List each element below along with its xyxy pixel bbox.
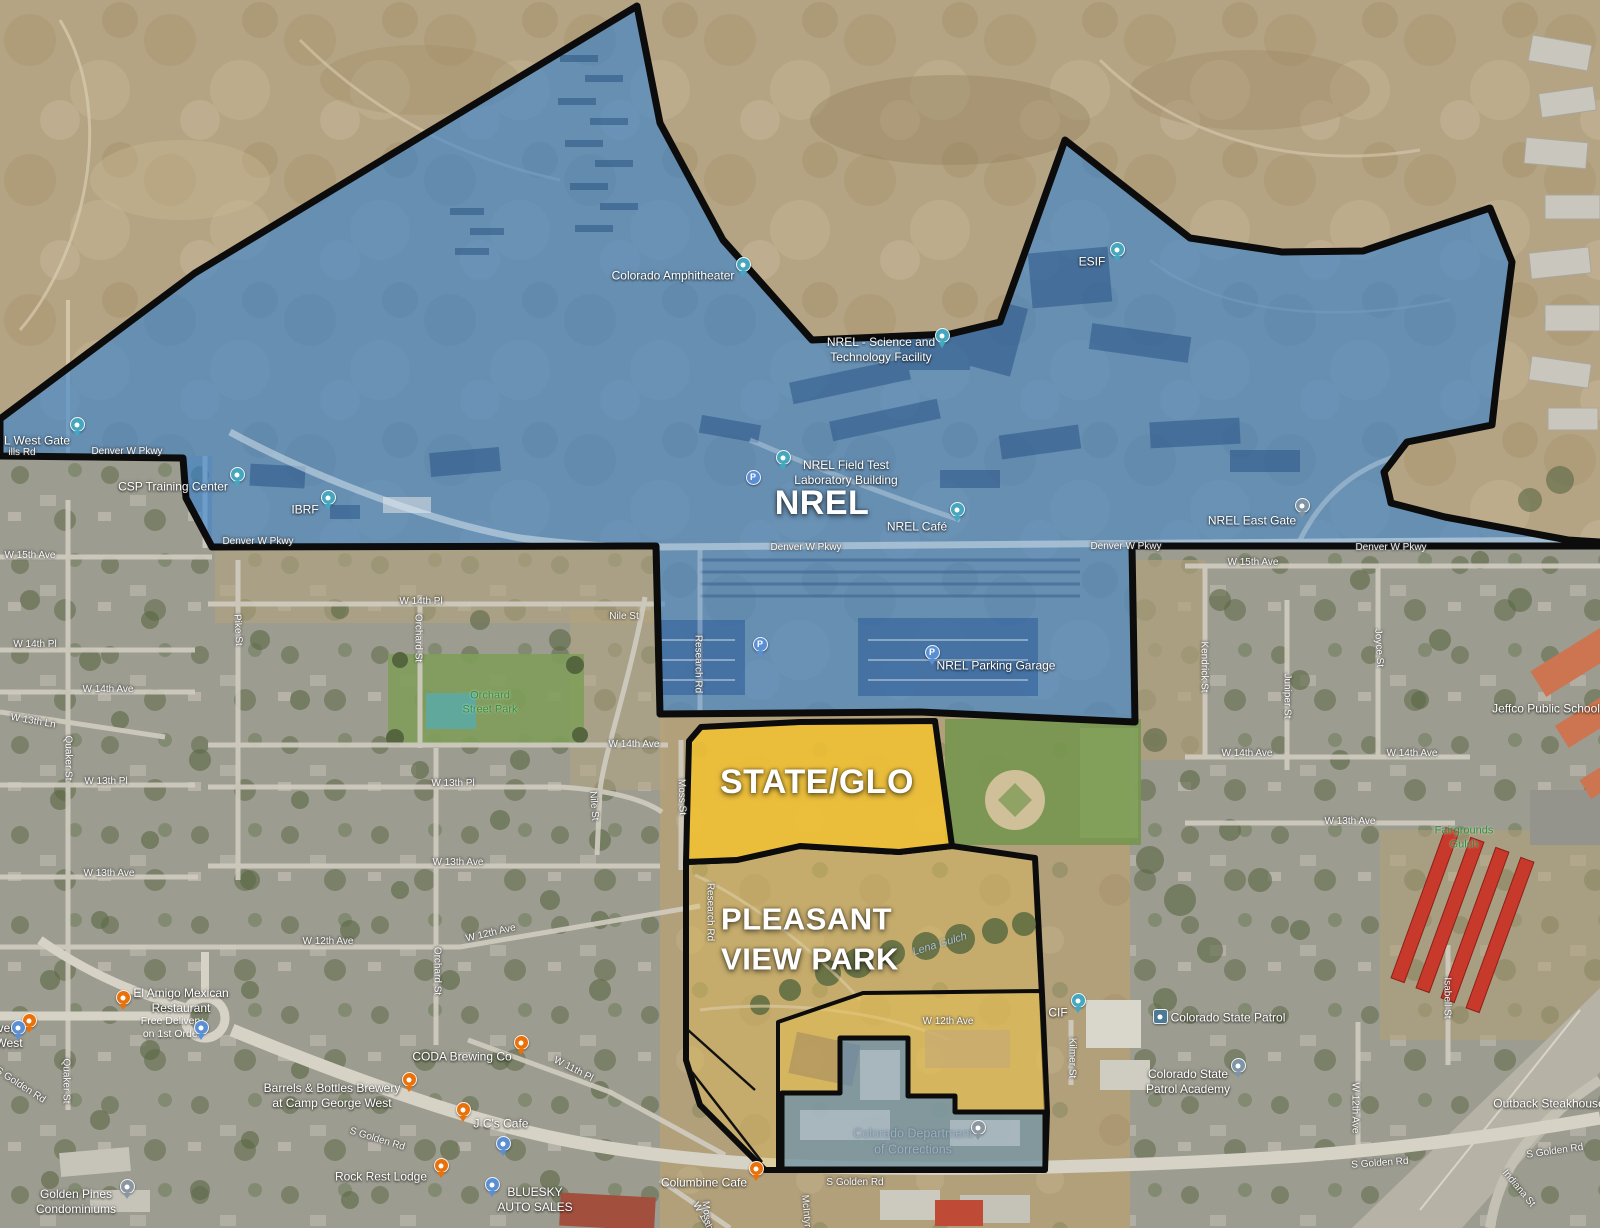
road-nile-st-2: Nile St <box>585 791 600 821</box>
road-s-golden-rd-2: S Golden Rd <box>826 1177 883 1190</box>
road-denver-w-pkwy-4: Denver W Pkwy <box>1090 541 1161 554</box>
road-w15th-ave-left: W 15th Ave <box>5 550 56 563</box>
road-w13th-pl-center: W 13th Pl <box>431 778 474 791</box>
road-w14th-ave-left: W 14th Ave <box>83 684 134 697</box>
golden-pines-pin[interactable] <box>120 1179 135 1194</box>
parking-garage-pin[interactable]: P <box>925 645 940 660</box>
parking-icon-1[interactable]: P <box>746 470 761 485</box>
jcs-cafe-pin[interactable] <box>456 1102 471 1117</box>
road-isabell-st: Isabell St <box>1440 977 1453 1018</box>
poi-state-patrol-academy[interactable]: Colorado State Patrol Academy <box>1146 1067 1230 1097</box>
road-nile-st-1: Nile St <box>609 611 638 624</box>
field-test-lab-pin[interactable] <box>776 450 791 465</box>
road-w12th-ave-vert: W 12th Ave <box>1348 1083 1361 1134</box>
road-w14th-pl-center: W 14th Pl <box>399 596 442 609</box>
nrel-region-label: NREL <box>775 482 870 525</box>
poi-colorado-amphitheater[interactable]: Colorado Amphitheater <box>612 269 735 284</box>
poi-nrel-science-tech[interactable]: NREL - Science and Technology Facility <box>827 335 935 365</box>
poi-golden-pines[interactable]: Golden Pines Condominiums <box>36 1187 116 1217</box>
road-w11th-pl-1: W 11th Pl <box>551 1055 595 1085</box>
road-w15th-ave-right: W 15th Ave <box>1228 557 1279 570</box>
el-amigo-restaurant-pin[interactable] <box>116 990 131 1005</box>
road-mcintyre-st: McIntyre St <box>798 1194 815 1228</box>
poi-coda-brewing[interactable]: CODA Brewing Co <box>412 1050 511 1065</box>
road-s-golden-rd-4: S Golden Rd <box>1526 1142 1584 1162</box>
rock-rest-lodge-pin[interactable] <box>434 1158 449 1173</box>
road-research-rd-1: Research Rd <box>691 635 704 693</box>
poi-el-amigo[interactable]: El Amigo Mexican Restaurant <box>133 986 228 1016</box>
state-patrol-badge-icon[interactable] <box>1153 1009 1168 1024</box>
road-orchard-st-1: Orchard St <box>411 614 424 662</box>
poi-jeffco-public-schools[interactable]: Jeffco Public Schools <box>1492 702 1600 717</box>
science-tech-facility-pin[interactable] <box>935 328 950 343</box>
poi-nrel-cafe[interactable]: NREL Café <box>887 520 947 535</box>
road-denver-w-pkwy-2: Denver W Pkwy <box>222 536 293 549</box>
road-w13th-pl-left: W 13th Pl <box>84 776 127 789</box>
poi-cif[interactable]: CIF <box>1048 1006 1067 1021</box>
poi-nrel-west-gate[interactable]: L West Gate <box>4 434 70 449</box>
poi-dept-of-corrections[interactable]: Colorado Department of Corrections <box>853 1126 973 1157</box>
road-kendrick-st: Kendrick St <box>1197 641 1210 692</box>
cif-pin[interactable] <box>1071 993 1086 1008</box>
lodging-pin-edge[interactable] <box>11 1020 26 1035</box>
poi-nrel-field-test-lab[interactable]: NREL Field Test Laboratory Building <box>794 458 897 488</box>
road-w12th-ave-campus: W 12th Ave <box>923 1016 974 1029</box>
road-w12th-ave-left: W 12th Ave <box>303 936 354 949</box>
barrels-bottles-pin[interactable] <box>402 1072 417 1087</box>
esif-pin[interactable] <box>1110 242 1125 257</box>
road-w14th-ave-right2: W 14th Ave <box>1387 748 1438 761</box>
road-quaker-st-1: Quaker St <box>61 735 74 780</box>
water-lena-gulch: Lena Gulch <box>911 930 969 960</box>
poi-csp-training-center[interactable]: CSP Training Center <box>118 480 228 495</box>
poi-barrels-bottles[interactable]: Barrels & Bottles Brewery at Camp George… <box>264 1081 401 1111</box>
poi-nrel-east-gate[interactable]: NREL East Gate <box>1208 514 1296 529</box>
poi-bluesky-auto-sales[interactable]: BLUESKY AUTO SALES <box>497 1185 572 1215</box>
road-hills-rd-fragment: ills Rd <box>8 447 35 460</box>
road-w14th-pl-left: W 14th Pl <box>13 639 56 652</box>
road-moss-st: Moss St <box>674 779 688 816</box>
poi-jcs-cafe[interactable]: J C's Cafe <box>474 1117 529 1132</box>
corrections-pin[interactable] <box>971 1120 986 1135</box>
amphitheater-pin[interactable] <box>736 257 751 272</box>
poi-colorado-state-patrol[interactable]: Colorado State Patrol <box>1171 1011 1286 1026</box>
poi-outback-steakhouse[interactable]: Outback Steakhouse <box>1493 1097 1600 1112</box>
road-juniper-st: Juniper St <box>1280 673 1293 718</box>
road-research-rd-2: Research Rd <box>703 883 716 941</box>
road-kilmer-st: Kilmer St <box>1065 1038 1078 1079</box>
road-w13th-ln: W 13th Ln <box>9 712 56 732</box>
road-indiana-st: Indiana St <box>1499 1168 1538 1211</box>
map-canvas[interactable]: NRELSTATE/GLOPLEASANT VIEW PARKW 15th Av… <box>0 0 1600 1228</box>
road-w14th-ave-right1: W 14th Ave <box>1222 748 1273 761</box>
shopping-pin-2[interactable] <box>496 1136 511 1151</box>
road-w14th-ave-center: W 14th Ave <box>609 739 660 752</box>
poi-esif[interactable]: ESIF <box>1079 255 1106 270</box>
road-joyce-st: Joyce St <box>1371 629 1385 668</box>
map-labels-layer: NRELSTATE/GLOPLEASANT VIEW PARKW 15th Av… <box>0 0 1600 1228</box>
road-moss-st-2: Moss St <box>698 1200 714 1228</box>
poi-rock-rest-lodge[interactable]: Rock Rest Lodge <box>335 1170 427 1185</box>
east-gate-icon[interactable] <box>1295 498 1310 513</box>
poi-nrel-parking-garage[interactable]: NREL Parking Garage <box>937 659 1056 674</box>
road-w13th-ave-center: W 13th Ave <box>433 857 484 870</box>
poi-columbine-cafe[interactable]: Columbine Cafe <box>661 1176 747 1191</box>
road-w12th-ave-diag: W 12th Ave <box>465 922 517 946</box>
parking-pin-2[interactable]: P <box>753 637 768 652</box>
road-orchard-st-2: Orchard St <box>430 947 443 995</box>
road-s-golden-rd-5: S Golden Rd <box>0 1065 47 1107</box>
park-fairgrounds-gulch: Fairgrounds Gulch <box>1435 824 1494 852</box>
road-w13th-ave-left: W 13th Ave <box>84 868 135 881</box>
state-glo-region-label: STATE/GLO <box>720 761 914 804</box>
road-denver-w-pkwy-1: Denver W Pkwy <box>91 446 162 459</box>
pleasant-view-park-label: PLEASANT VIEW PARK <box>721 900 899 981</box>
park-orchard-street-park: Orchard Street Park <box>462 689 517 717</box>
bluesky-auto-pin[interactable] <box>485 1177 500 1192</box>
shopping-pin-1[interactable] <box>194 1020 209 1035</box>
coda-brewing-pin[interactable] <box>514 1035 529 1050</box>
patrol-academy-pin[interactable] <box>1231 1058 1246 1073</box>
csp-training-center-pin[interactable] <box>230 467 245 482</box>
west-gate-pin[interactable] <box>70 417 85 432</box>
nrel-cafe-pin[interactable] <box>950 502 965 517</box>
road-w13th-ave-right: W 13th Ave <box>1325 816 1376 829</box>
road-s-golden-rd-3: S Golden Rd <box>1351 1156 1409 1172</box>
road-s-golden-rd-1: S Golden Rd <box>348 1126 406 1155</box>
road-quaker-st-2: Quaker St <box>59 1058 72 1103</box>
road-denver-w-pkwy-5: Denver W Pkwy <box>1355 542 1426 555</box>
ibrf-pin[interactable] <box>321 490 336 505</box>
poi-ibrf[interactable]: IBRF <box>291 503 318 518</box>
road-denver-w-pkwy-3: Denver W Pkwy <box>770 542 841 555</box>
columbine-cafe-pin[interactable] <box>749 1161 764 1176</box>
road-pike-st: Pike St <box>230 614 244 646</box>
